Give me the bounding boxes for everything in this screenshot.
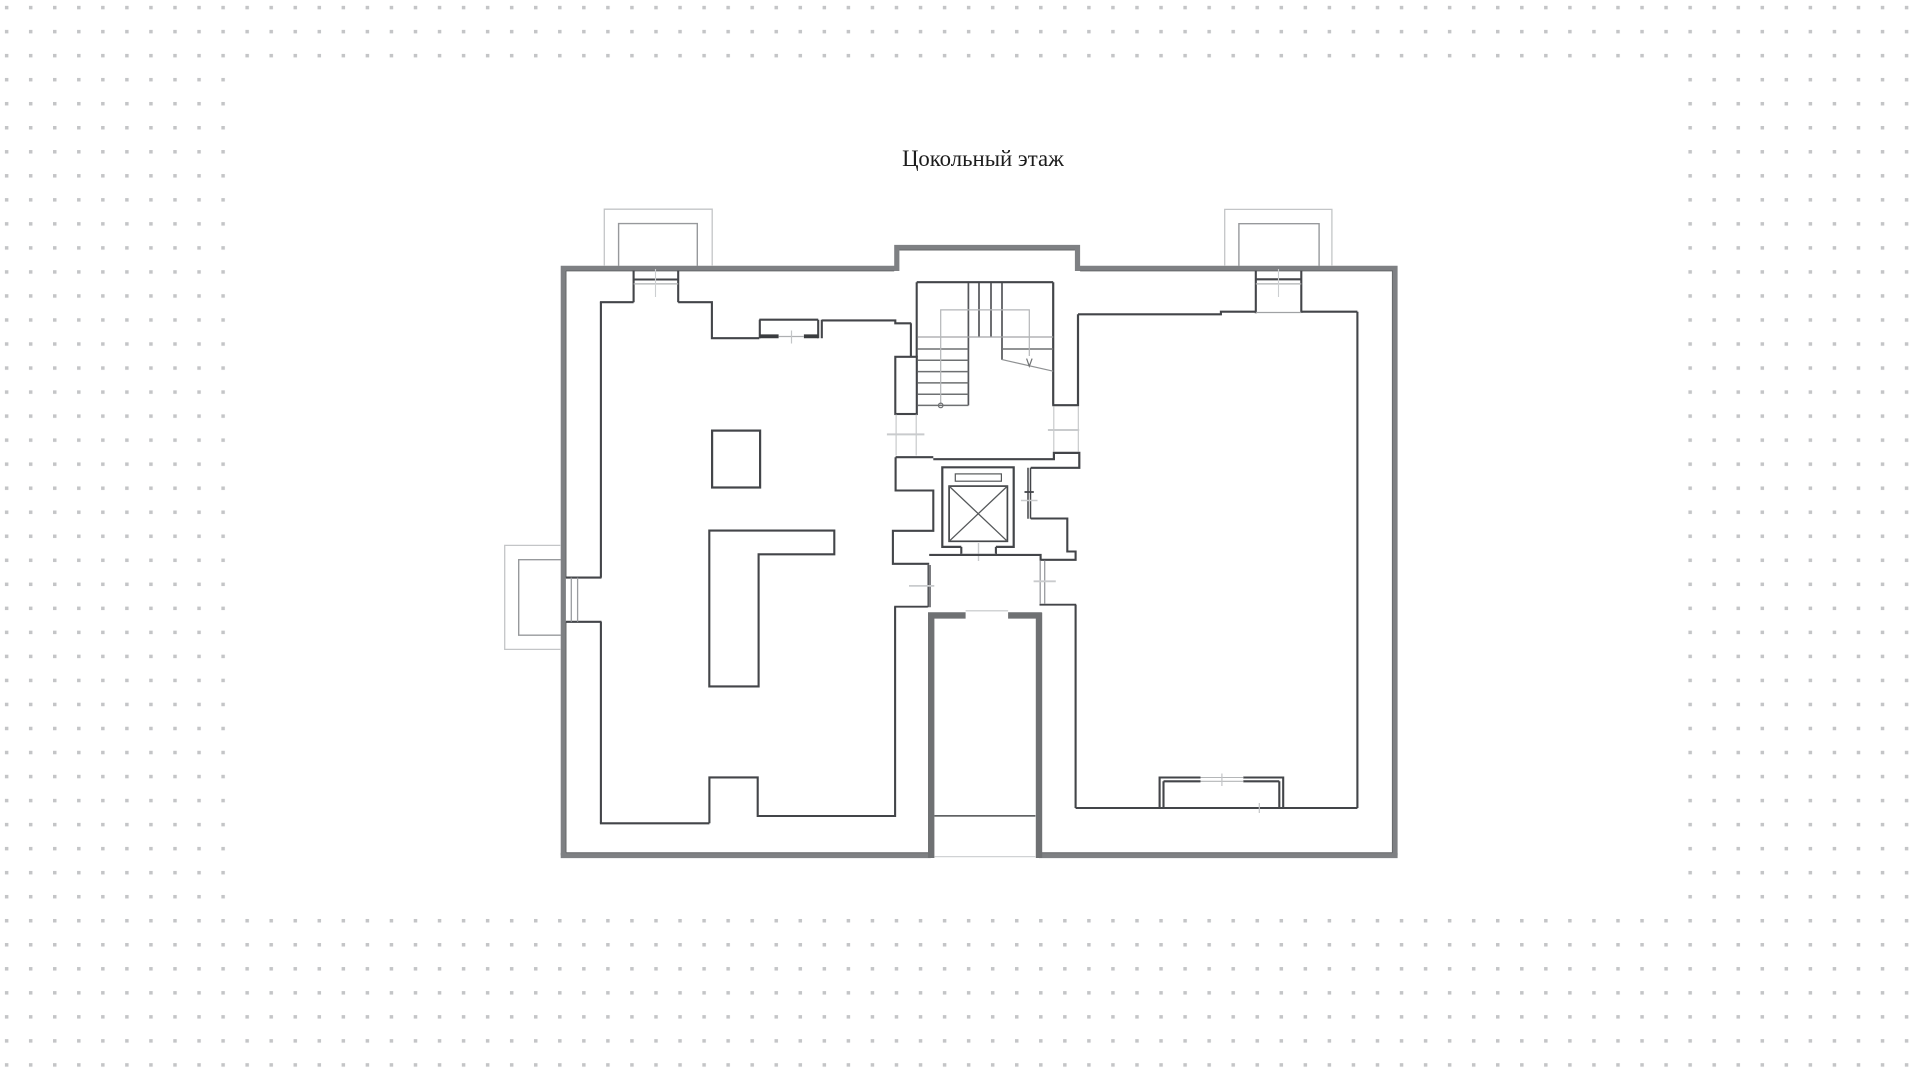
svg-text:Цокольный этаж: Цокольный этаж bbox=[902, 146, 1064, 171]
